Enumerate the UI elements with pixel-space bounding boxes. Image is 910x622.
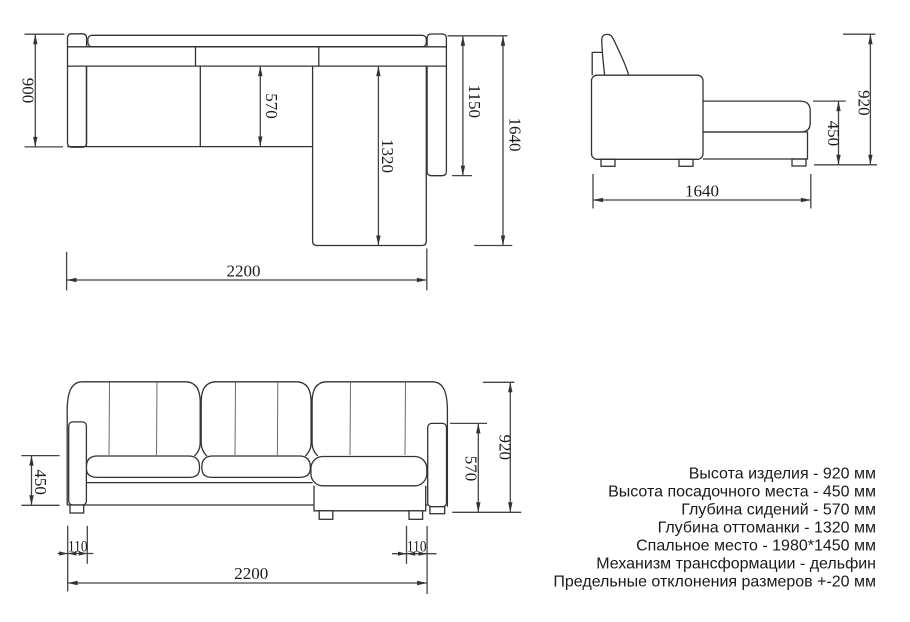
svg-text:570: 570 (461, 456, 480, 482)
svg-text:110: 110 (68, 538, 88, 555)
svg-text:2200: 2200 (234, 564, 268, 583)
svg-text:1150: 1150 (465, 85, 484, 118)
svg-text:Предельные отклонения размеров: Предельные отклонения размеров +-20 мм (553, 574, 876, 591)
svg-text:450: 450 (31, 469, 50, 495)
svg-text:Спальное место - 1980*1450 мм: Спальное место - 1980*1450 мм (636, 538, 876, 555)
svg-text:1640: 1640 (685, 182, 719, 201)
svg-text:Высота изделия - 920 мм: Высота изделия - 920 мм (689, 465, 876, 482)
svg-text:570: 570 (262, 93, 281, 119)
svg-text:2200: 2200 (227, 262, 261, 281)
svg-text:Глубина сидений - 570 мм: Глубина сидений - 570 мм (681, 502, 876, 519)
svg-text:1640: 1640 (505, 118, 524, 152)
svg-text:920: 920 (854, 90, 873, 116)
svg-text:110: 110 (407, 539, 427, 556)
svg-text:Механизм трансформации - дельф: Механизм трансформации - дельфин (596, 556, 876, 573)
svg-text:900: 900 (19, 78, 38, 104)
svg-text:Глубина оттоманки - 1320 мм: Глубина оттоманки - 1320 мм (658, 520, 876, 537)
svg-text:450: 450 (824, 121, 843, 147)
svg-text:920: 920 (495, 435, 514, 461)
svg-text:Высота посадочного места - 450: Высота посадочного места - 450 мм (608, 484, 876, 501)
svg-text:1320: 1320 (378, 139, 397, 173)
